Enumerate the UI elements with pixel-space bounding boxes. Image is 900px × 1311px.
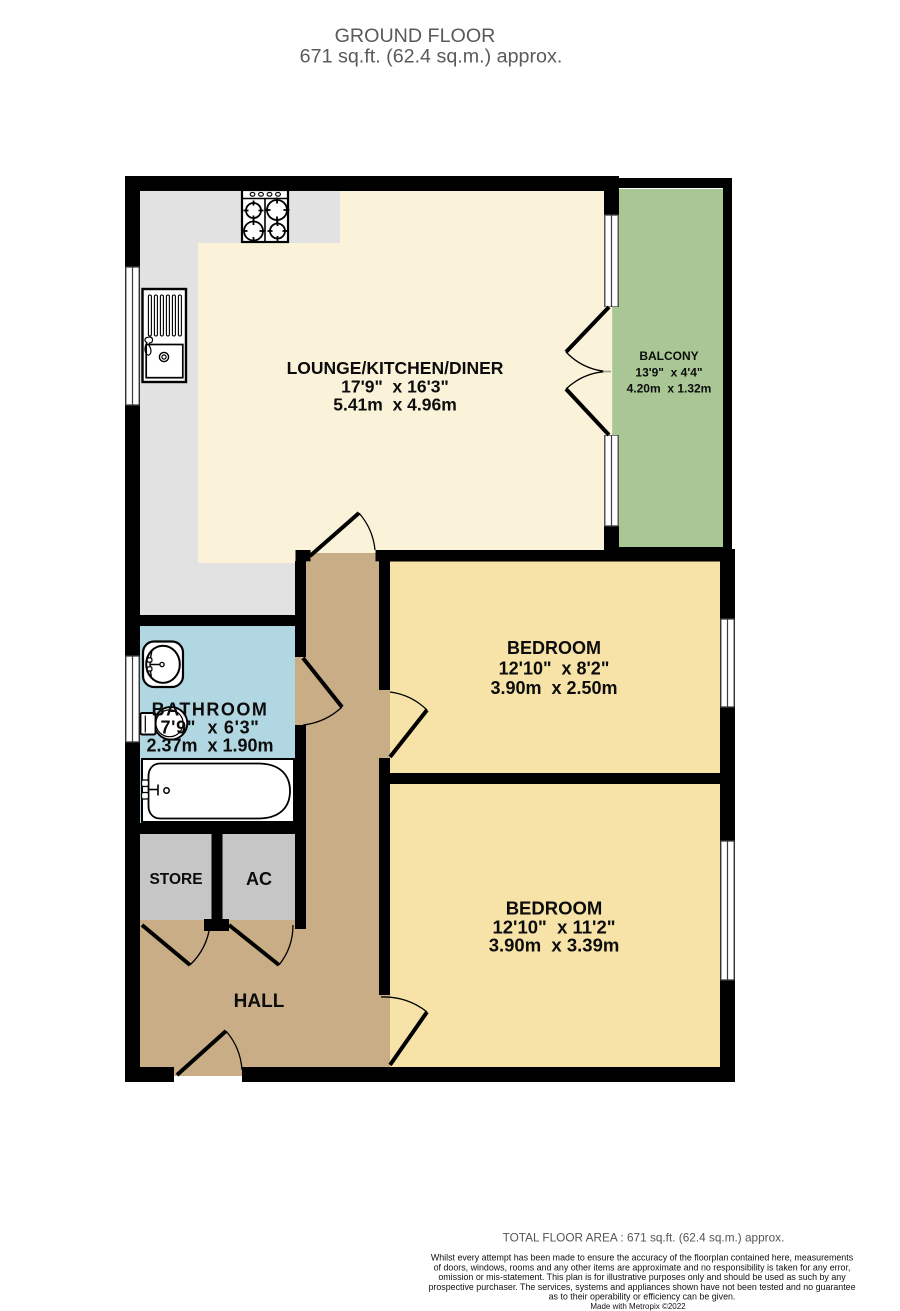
svg-text:TOTAL FLOOR AREA : 671 sq.ft.: TOTAL FLOOR AREA : 671 sq.ft. (62.4 sq.m… [503,1231,785,1245]
svg-text:12'10" x 8'2": 12'10" x 8'2" [499,659,610,679]
svg-text:STORE: STORE [149,871,202,888]
svg-text:671 sq.ft. (62.4 sq.m.) approx: 671 sq.ft. (62.4 sq.m.) approx. [300,46,563,68]
svg-text:4.20m x 1.32m: 4.20m x 1.32m [627,382,712,396]
svg-text:Whilst every attempt has been: Whilst every attempt has been made to en… [431,1253,854,1263]
svg-text:AC: AC [246,869,272,889]
svg-text:3.90m x 3.39m: 3.90m x 3.39m [489,935,620,956]
svg-text:prospective purchaser. The ser: prospective purchaser. The services, sys… [428,1282,855,1292]
svg-text:BALCONY: BALCONY [639,349,698,363]
svg-text:GROUND FLOOR: GROUND FLOOR [335,25,496,47]
svg-text:BEDROOM: BEDROOM [507,638,601,658]
svg-text:LOUNGE/KITCHEN/DINER: LOUNGE/KITCHEN/DINER [287,358,504,378]
svg-text:Made with Metropix ©2022: Made with Metropix ©2022 [590,1302,686,1311]
svg-text:BATHROOM: BATHROOM [152,700,269,720]
svg-text:omission or mis-statement. Thi: omission or mis-statement. This plan is … [438,1272,846,1282]
svg-text:5.41m x 4.96m: 5.41m x 4.96m [333,395,457,415]
svg-text:17'9" x 16'3": 17'9" x 16'3" [341,377,449,397]
svg-text:2.37m x 1.90m: 2.37m x 1.90m [146,736,273,756]
svg-text:3.90m x 2.50m: 3.90m x 2.50m [490,678,617,698]
svg-text:BEDROOM: BEDROOM [506,898,603,919]
svg-text:HALL: HALL [234,991,285,1012]
svg-text:7'9" x 6'3": 7'9" x 6'3" [160,718,259,738]
svg-text:13'9" x 4'4": 13'9" x 4'4" [635,366,702,380]
svg-text:as to their operability or eff: as to their operability or efficiency ca… [549,1292,736,1302]
svg-text:of doors, windows, rooms and a: of doors, windows, rooms and any other i… [434,1262,851,1272]
